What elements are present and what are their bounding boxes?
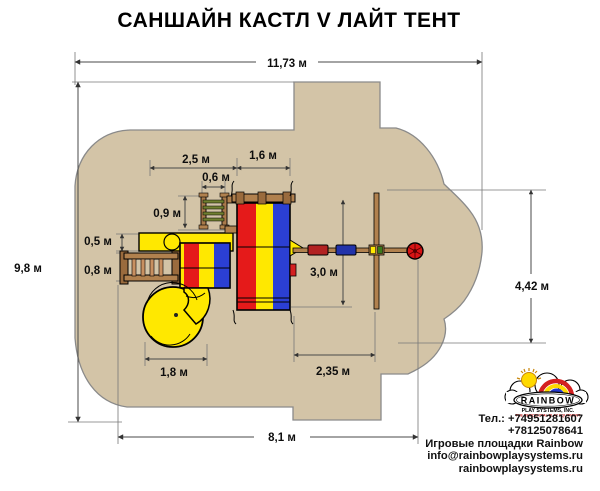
contact-phone-1: Тел.: +74951281607	[425, 413, 583, 425]
playground-plan-page: 11,73 м 9,8 м 2,5 м 1,6 м 0,6 м	[0, 0, 600, 491]
contact-brand-line: Игровые площадки Rainbow	[425, 438, 583, 450]
swing-seat-blue	[336, 245, 356, 255]
swing-seat-red	[308, 245, 328, 255]
logo-brand: RAINBOW	[521, 396, 576, 406]
contact-phone-2: +78125078641	[425, 425, 583, 437]
slide-end-cap	[164, 234, 180, 250]
contact-site: rainbowplaysystems.ru	[425, 463, 583, 475]
dim-label-net-width: 0,6 м	[202, 172, 230, 184]
dim-label-base-span: 8,1 м	[268, 432, 296, 444]
dim-label-slide-offset: 0,5 м	[84, 236, 112, 248]
small-tent	[180, 243, 230, 288]
dim-label-total-depth: 9,8 м	[14, 263, 42, 275]
dim-label-left-span: 2,5 м	[182, 154, 210, 166]
dim-label-right-clearance: 4,42 м	[515, 281, 549, 293]
slide-entry-marker	[290, 264, 296, 276]
dim-label-spiral-width: 1,8 м	[160, 367, 188, 379]
dim-label-swing-depth: 3,0 м	[310, 267, 338, 279]
net-bottom-beam	[225, 226, 237, 233]
dim-label-net-depth: 0,9 м	[153, 208, 181, 220]
page-title: САНШАЙН КАСТЛ V ЛАЙТ ТЕНТ	[0, 9, 578, 33]
contact-block: Тел.: +74951281607 +78125078641 Игровые …	[425, 413, 583, 475]
dim-label-swing-span: 2,35 м	[316, 366, 350, 378]
dim-label-ladder-depth: 0,8 м	[84, 265, 112, 277]
rainbow-logo: RAINBOW PLAY SYSTEMS, INC. THE RESIDENTI…	[505, 368, 588, 418]
contact-email: info@rainbowplaysystems.ru	[425, 450, 583, 462]
dim-label-total-width: 11,73 м	[267, 58, 307, 70]
dim-label-tent-width: 1,6 м	[249, 150, 277, 162]
tire-swing	[407, 243, 423, 259]
